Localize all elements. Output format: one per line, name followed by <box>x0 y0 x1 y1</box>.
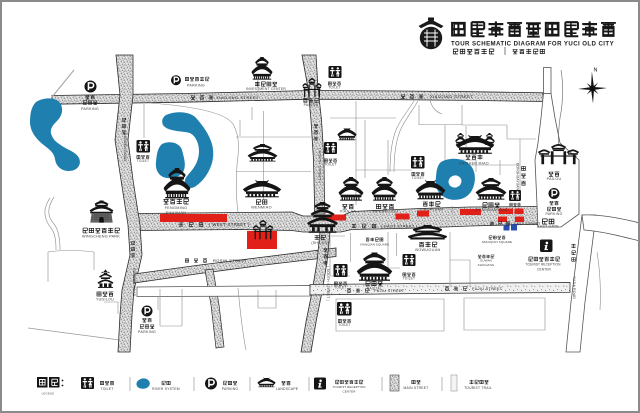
svg-text:( SOUTH STREET ): ( SOUTH STREET ) <box>326 266 330 301</box>
svg-text:DONGHUAYUAN: DONGHUAYUAN <box>516 163 520 191</box>
svg-text:XIAN YA: XIAN YA <box>340 210 357 214</box>
svg-text:YUJIA ROAD: YUJIA ROAD <box>572 276 576 299</box>
svg-text:TOURIST TRAIL: TOURIST TRAIL <box>464 386 492 390</box>
svg-text:YUDILOU: YUDILOU <box>96 298 114 302</box>
svg-text:PARKING: PARKING <box>545 212 562 216</box>
svg-text:( EAST STREET ): ( EAST STREET ) <box>381 224 418 229</box>
svg-text:GARDEN ROAD: GARDEN ROAD <box>123 133 127 162</box>
svg-text:PARKING: PARKING <box>81 107 99 111</box>
svg-text:XIANQIAN SQUARE: XIANQIAN SQUARE <box>360 243 389 247</box>
svg-text:MAIN STREET: MAIN STREET <box>404 386 429 390</box>
svg-text:N: N <box>594 68 598 74</box>
svg-text:(SHILOU): (SHILOU) <box>311 241 328 245</box>
svg-text:CENTER: CENTER <box>343 390 357 394</box>
svg-text:GUWAN: GUWAN <box>480 259 492 263</box>
svg-text:WINGCHENG PARK: WINGCHENG PARK <box>82 235 120 239</box>
svg-text:( NORTH STREET ): ( NORTH STREET ) <box>318 148 322 183</box>
svg-text:TOILET: TOILET <box>328 86 340 90</box>
svg-text:XIHUAYUAN: XIHUAYUAN <box>420 207 444 211</box>
svg-text:TOILET: TOILET <box>403 277 415 281</box>
svg-text:SHICHANG: SHICHANG <box>478 263 495 267</box>
svg-text:PARKING: PARKING <box>222 387 239 391</box>
svg-text:TOILET: TOILET <box>324 163 336 167</box>
svg-text:WENMIAO: WENMIAO <box>251 205 272 209</box>
svg-text:TOILET: TOILET <box>412 176 424 180</box>
svg-text:PAIGOU: PAIGOU <box>304 103 319 107</box>
svg-text:ROSIN STREET: ROSIN STREET <box>213 258 248 263</box>
svg-text:TOILET: TOILET <box>137 159 149 163</box>
svg-text:SHUYUAN: SHUYUAN <box>166 211 187 215</box>
svg-text:INVESTMENT CENTER: INVESTMENT CENTER <box>246 87 286 91</box>
svg-text:CAISHEN MIAO: CAISHEN MIAO <box>459 162 489 166</box>
svg-text:BOWUGUAN: BOWUGUAN <box>415 248 440 252</box>
svg-text:TOILET: TOILET <box>100 387 113 391</box>
svg-text:LANDSCAPE: LANDSCAPE <box>276 387 299 391</box>
svg-text:FUJIU STREET: FUJIU STREET <box>472 287 503 291</box>
svg-text:LEGEND: LEGEND <box>42 392 55 396</box>
svg-text:FUJIU STREET: FUJIU STREET <box>374 289 405 293</box>
svg-text:CHENGHUANGMIAO: CHENGHUANGMIAO <box>475 208 508 212</box>
svg-text:TOUR SCHEMATIC DIAGRAM FOR YUC: TOUR SCHEMATIC DIAGRAM FOR YUCI OLD CITY <box>451 41 614 48</box>
svg-text:PARKING: PARKING <box>187 83 205 87</box>
svg-text:PAILOU: PAILOU <box>547 177 562 181</box>
svg-text:TOILET: TOILET <box>334 286 346 290</box>
svg-text:SIFENG LOU: SIFENG LOU <box>372 210 398 214</box>
svg-text:XIAOJING STREET: XIAOJING STREET <box>430 94 473 99</box>
svg-text:FENGMING: FENGMING <box>165 206 188 210</box>
svg-text:RIVER SYSTEM: RIVER SYSTEM <box>152 387 180 391</box>
svg-text:XIAOJING STREET: XIAOJING STREET <box>216 95 259 100</box>
svg-text:TOILET: TOILET <box>338 323 350 327</box>
svg-text:MIAOQIAN SQUARE: MIAOQIAN SQUARE <box>482 240 512 244</box>
svg-text:TOURIST RECEPTION: TOURIST RECEPTION <box>332 385 365 389</box>
svg-text:TOURIST RECEPTION: TOURIST RECEPTION <box>525 263 561 267</box>
svg-text:CENTER: CENTER <box>537 268 551 272</box>
svg-text:EAST STREET: EAST STREET <box>514 222 541 226</box>
svg-text:GARDEN ROAD: GARDEN ROAD <box>132 268 136 297</box>
svg-text:PARKING: PARKING <box>138 330 156 334</box>
svg-text:( WEST STREET ): ( WEST STREET ) <box>209 222 250 227</box>
